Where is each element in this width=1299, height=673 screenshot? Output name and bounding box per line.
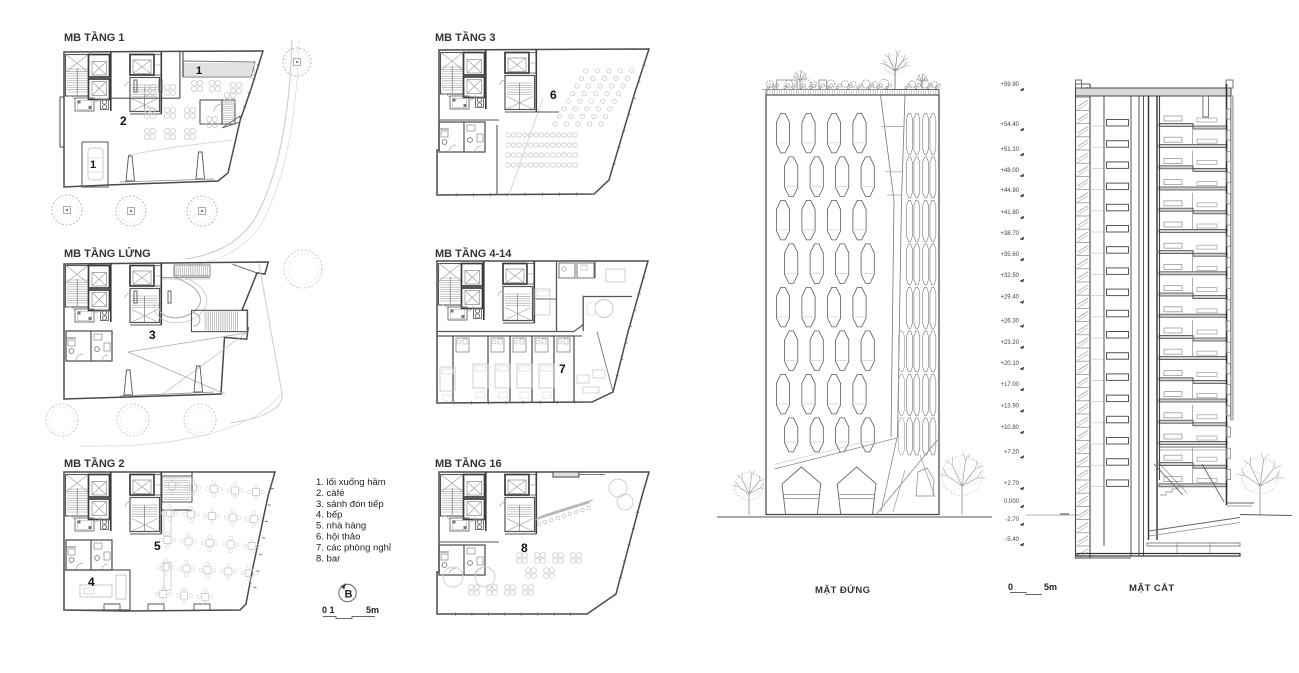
svg-text:-5.40: -5.40 <box>1005 537 1019 543</box>
svg-text:2: 2 <box>120 114 127 128</box>
svg-text:MB TẦNG 16: MB TẦNG 16 <box>435 457 502 470</box>
svg-text:MB TẦNG 3: MB TẦNG 3 <box>435 31 496 44</box>
svg-text:5m: 5m <box>366 605 379 615</box>
svg-text:+10.80: +10.80 <box>1000 425 1019 431</box>
svg-text:4. bếp: 4. bếp <box>316 510 342 521</box>
svg-text:B: B <box>345 589 353 601</box>
svg-text:1: 1 <box>196 65 202 77</box>
svg-text:MB TẦNG 1: MB TẦNG 1 <box>64 31 125 44</box>
svg-text:0.000: 0.000 <box>1004 499 1020 505</box>
svg-text:+48.00: +48.00 <box>1000 168 1019 174</box>
svg-text:+54.40: +54.40 <box>1000 122 1019 128</box>
svg-text:4: 4 <box>88 575 95 589</box>
svg-text:+7.20: +7.20 <box>1004 450 1020 456</box>
svg-text:MB TẦNG 4-14: MB TẦNG 4-14 <box>435 247 512 260</box>
svg-text:3. sảnh đón tiếp: 3. sảnh đón tiếp <box>316 499 384 510</box>
svg-text:+29.40: +29.40 <box>1000 295 1019 301</box>
svg-text:2. càfé: 2. càfé <box>316 488 345 499</box>
svg-text:+20.10: +20.10 <box>1000 361 1019 367</box>
svg-text:+44.90: +44.90 <box>1000 188 1019 194</box>
svg-text:6. hội thảo: 6. hội thảo <box>316 532 360 543</box>
svg-text:+59.90: +59.90 <box>1000 82 1019 88</box>
svg-text:5. nhà hàng: 5. nhà hàng <box>316 521 366 532</box>
svg-text:+51.10: +51.10 <box>1000 147 1019 153</box>
svg-text:1. lối xuống hầm: 1. lối xuống hầm <box>316 477 386 488</box>
svg-text:+41.80: +41.80 <box>1000 210 1019 216</box>
svg-text:7. các phòng nghỉ: 7. các phòng nghỉ <box>316 542 392 553</box>
svg-text:MẶT ĐỨNG: MẶT ĐỨNG <box>815 584 870 596</box>
svg-text:+26.30: +26.30 <box>1000 319 1019 325</box>
svg-text:5m: 5m <box>1044 582 1057 592</box>
svg-text:+32.50: +32.50 <box>1000 273 1019 279</box>
svg-text:+38.70: +38.70 <box>1000 231 1019 237</box>
svg-text:+17.00: +17.00 <box>1000 382 1019 388</box>
svg-text:+23.20: +23.20 <box>1000 340 1019 346</box>
svg-text:MẶT CẮT: MẶT CẮT <box>1129 583 1175 594</box>
svg-text:MB TẦNG 2: MB TẦNG 2 <box>64 457 125 470</box>
svg-text:3: 3 <box>149 328 156 342</box>
svg-text:+35.60: +35.60 <box>1000 252 1019 258</box>
svg-text:-2.70: -2.70 <box>1005 517 1019 523</box>
svg-text:8. bar: 8. bar <box>316 553 340 564</box>
svg-text:+13.90: +13.90 <box>1000 403 1019 409</box>
svg-text:0: 0 <box>1008 582 1013 592</box>
svg-text:+2.70: +2.70 <box>1004 481 1020 487</box>
svg-text:0 1: 0 1 <box>322 605 335 615</box>
svg-text:6: 6 <box>550 88 557 102</box>
svg-text:1: 1 <box>90 159 96 171</box>
svg-text:7: 7 <box>559 362 566 376</box>
svg-text:MB TẦNG LỬNG: MB TẦNG LỬNG <box>64 247 151 260</box>
